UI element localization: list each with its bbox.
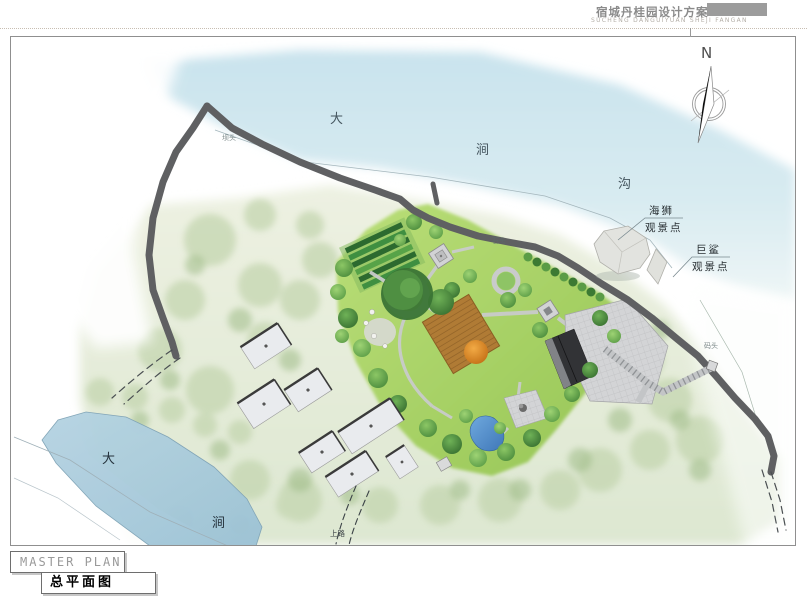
header-dotted-rule (0, 28, 807, 29)
river-label-da-top: 大 (330, 108, 343, 127)
river-label-gou-top: 沟 (618, 173, 631, 192)
orange-tree (464, 340, 488, 364)
header-rule-tick (690, 28, 691, 37)
river-label-da-bottom: 大 (102, 448, 115, 467)
viewpoint-shark-suffix: 观景点 (692, 259, 730, 274)
sheet-title-en-box: MASTER PLAN (10, 551, 125, 573)
river-label-jian-top: 涧 (476, 139, 489, 158)
title-accent-box (707, 3, 767, 16)
small-label-matou: 码头 (704, 341, 718, 351)
viewpoint-shark-name: 巨鲨 (696, 242, 721, 257)
sheet-title-cn-box: 总平面图 (41, 572, 156, 594)
viewpoint-sealion-name: 海狮 (649, 203, 674, 218)
small-label-batou: 坝头 (222, 133, 236, 143)
plan-sheet: 宿城丹桂园设计方案 SUCHENG DANGUIYUAN SHEJI FANGA… (0, 0, 807, 605)
road-label-shanglu: 上路 (330, 528, 345, 539)
north-label: N (701, 44, 712, 62)
site-plan-artwork (0, 0, 807, 605)
central-big-tree (381, 268, 433, 320)
sheet-subtitle: SUCHENG DANGUIYUAN SHEJI FANGAN (591, 17, 748, 24)
river-label-jian-bottom: 涧 (212, 512, 225, 531)
viewpoint-sealion-suffix: 观景点 (645, 220, 683, 235)
small-label-shitou: 石头 (492, 236, 506, 246)
round-lawn (494, 269, 518, 293)
